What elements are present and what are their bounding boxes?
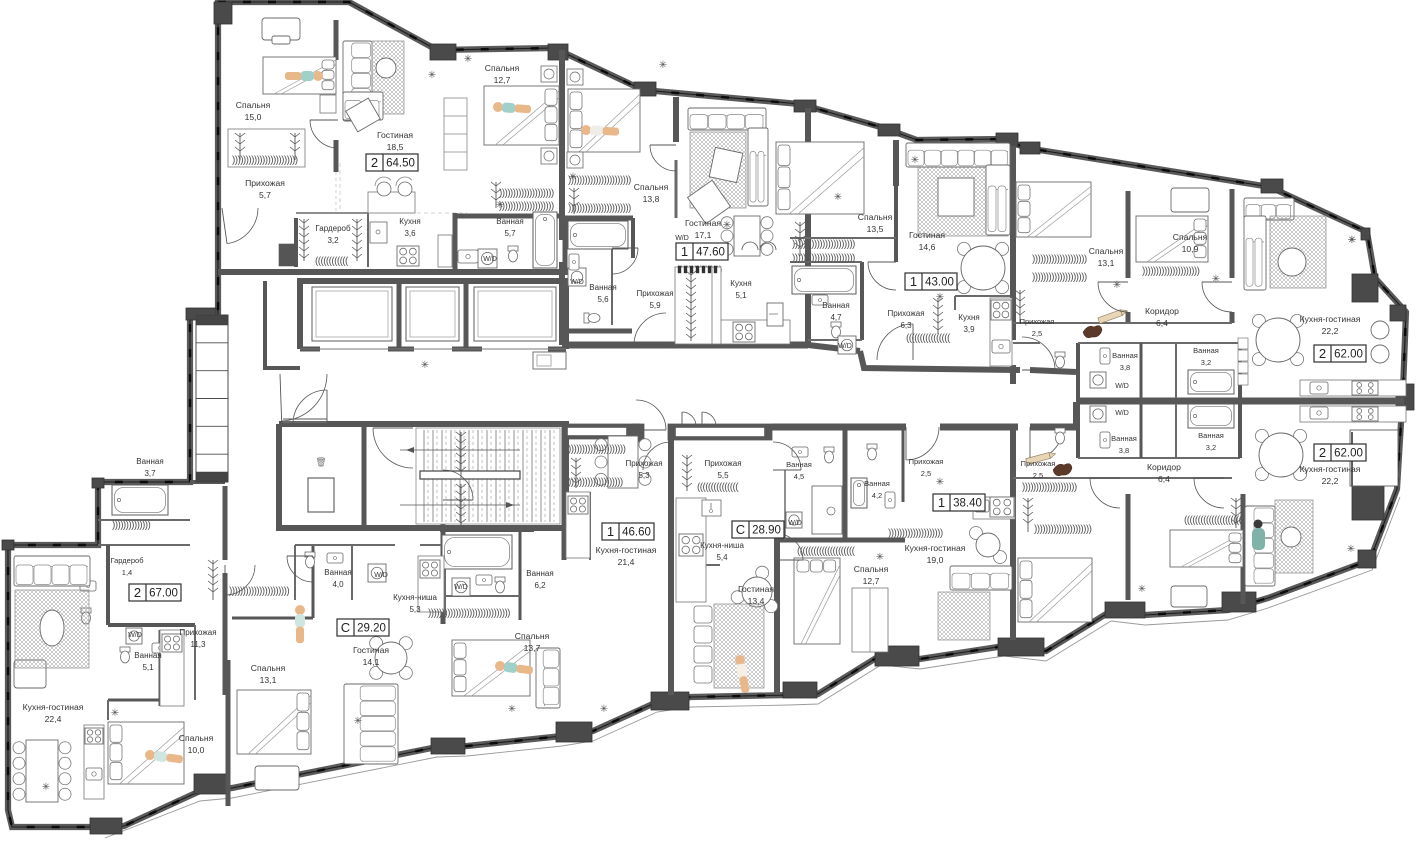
svg-text:47.60: 47.60: [696, 247, 725, 259]
svg-text:2,5: 2,5: [1033, 471, 1043, 480]
svg-text:46.60: 46.60: [622, 527, 651, 539]
svg-text:Кухня-гостиная: Кухня-гостиная: [905, 543, 966, 553]
svg-text:2: 2: [1319, 346, 1326, 361]
svg-text:🗑: 🗑: [315, 457, 326, 467]
svg-text:✳: ✳: [508, 704, 516, 715]
svg-text:Спальня: Спальня: [634, 182, 669, 192]
svg-text:✳: ✳: [876, 552, 884, 563]
svg-text:17,1: 17,1: [695, 230, 712, 240]
svg-text:)))))))))))))): )))))))))))))): [112, 520, 150, 531]
svg-text:W/D: W/D: [838, 343, 852, 350]
svg-text:5,3: 5,3: [638, 471, 650, 480]
svg-text:)))))))))))))))))))))))): )))))))))))))))))))))))): [232, 155, 298, 166]
svg-text:6,2: 6,2: [534, 581, 546, 590]
svg-text:Прихожая: Прихожая: [1020, 317, 1055, 326]
svg-text:Прихожая: Прихожая: [1021, 459, 1056, 468]
svg-text:15,0: 15,0: [245, 112, 262, 122]
svg-text:)))))))))))))))))))): )))))))))))))))))))): [1032, 272, 1087, 283]
svg-text:✳: ✳: [1212, 274, 1220, 285]
svg-text:Кухня-гостиная: Кухня-гостиная: [23, 702, 84, 712]
svg-text:Ванная: Ванная: [496, 217, 523, 226]
svg-text:W/D: W/D: [788, 520, 802, 527]
svg-text:1: 1: [910, 274, 917, 289]
svg-text:Ванная: Ванная: [136, 457, 163, 466]
svg-text:С: С: [341, 620, 350, 635]
svg-text:Ванная: Ванная: [1198, 431, 1224, 440]
svg-text:✳: ✳: [421, 360, 429, 371]
svg-text:))))))))))))))))))))): ))))))))))))))))))))): [1034, 524, 1092, 535]
svg-text:✳: ✳: [600, 704, 608, 715]
svg-text:))))))))))))))))))))))): ))))))))))))))))))))))): [568, 175, 631, 186]
svg-text:12,7: 12,7: [494, 75, 511, 85]
svg-text:Кухня: Кухня: [730, 279, 751, 288]
svg-text:13,1: 13,1: [260, 675, 277, 685]
svg-text:12,7: 12,7: [863, 576, 880, 586]
svg-text:5,7: 5,7: [259, 190, 271, 200]
svg-text:4,5: 4,5: [794, 472, 804, 481]
svg-text:W/D: W/D: [1115, 383, 1129, 390]
svg-text:✳: ✳: [723, 220, 731, 231]
svg-text:)))))))))))))))))))): )))))))))))))))))))): [888, 528, 943, 539]
svg-text:Спальня: Спальня: [858, 212, 893, 222]
svg-text:Кухня: Кухня: [958, 313, 979, 322]
svg-text:43.00: 43.00: [925, 277, 954, 289]
svg-text:4,0: 4,0: [332, 580, 344, 589]
svg-text:22,2: 22,2: [1322, 326, 1339, 336]
svg-text:Гостиная: Гостиная: [377, 130, 413, 140]
svg-text:5,1: 5,1: [735, 291, 747, 300]
svg-text:✳: ✳: [111, 708, 119, 719]
svg-text:6,4: 6,4: [1156, 318, 1168, 328]
svg-text:3,9: 3,9: [963, 325, 975, 334]
svg-text:✳: ✳: [834, 192, 842, 203]
svg-text:✳: ✳: [464, 54, 472, 65]
svg-text:(((((((((((((((((((((: (((((((((((((((((((((: [797, 546, 856, 557]
svg-text:2,5: 2,5: [1032, 329, 1042, 338]
svg-text:Прихожая: Прихожая: [625, 459, 662, 468]
svg-text:Спальня: Спальня: [1173, 232, 1208, 242]
svg-text:Кухня: Кухня: [399, 217, 420, 226]
svg-text:Ванная: Ванная: [864, 479, 890, 488]
svg-text:W/D: W/D: [483, 256, 497, 263]
svg-text:5,1: 5,1: [142, 663, 154, 672]
svg-text:✳: ✳: [42, 782, 50, 793]
svg-text:3,6: 3,6: [404, 229, 416, 238]
svg-text:))))))))))))))))))))))): ))))))))))))))))))))))): [792, 253, 855, 264]
svg-text:18,5: 18,5: [387, 142, 404, 152]
svg-text:Гардероб: Гардероб: [315, 224, 351, 233]
svg-text:Прихожая: Прихожая: [704, 459, 741, 468]
svg-text:Коридор: Коридор: [1147, 462, 1181, 472]
svg-text:13,4: 13,4: [748, 596, 765, 606]
svg-text:Ванная: Ванная: [1112, 351, 1138, 360]
svg-text:11,3: 11,3: [191, 640, 207, 649]
svg-text:22,4: 22,4: [45, 714, 62, 724]
svg-text:Гостиная: Гостиная: [353, 645, 389, 655]
svg-text:Ванная: Ванная: [1193, 346, 1219, 355]
svg-text:✳: ✳: [496, 200, 504, 211]
svg-text:Спальня: Спальня: [854, 564, 889, 574]
svg-text:14,6: 14,6: [919, 242, 936, 252]
svg-text:Гостиная: Гостиная: [909, 230, 945, 240]
svg-text:13,7: 13,7: [524, 643, 541, 653]
svg-text:)))))))))))))))))))): )))))))))))))))))))): [499, 201, 554, 212]
svg-text:2: 2: [1319, 445, 1326, 460]
svg-text:4,7: 4,7: [830, 313, 842, 322]
svg-text:Гостиная: Гостиная: [685, 218, 721, 228]
svg-text:)))))))))))))))))))))))))))))): )))))))))))))))))))))))))))))): [428, 608, 510, 619]
svg-text:Ванная: Ванная: [786, 460, 812, 469]
svg-text:Прихожая: Прихожая: [179, 628, 216, 637]
svg-text:✳: ✳: [936, 477, 944, 488]
svg-text:Прихожая: Прихожая: [909, 457, 944, 466]
svg-text:5,9: 5,9: [649, 301, 661, 310]
svg-text:10,0: 10,0: [188, 745, 205, 755]
svg-text:21,4: 21,4: [618, 557, 635, 567]
svg-text:5,4: 5,4: [716, 553, 728, 562]
svg-text:Ванная: Ванная: [1111, 434, 1137, 443]
svg-text:Кухня-ниша: Кухня-ниша: [393, 593, 437, 602]
svg-text:Спальня: Спальня: [251, 663, 286, 673]
svg-text:W/D: W/D: [570, 279, 584, 286]
svg-text:3,8: 3,8: [1119, 446, 1129, 455]
svg-text:Кухня-гостиная: Кухня-гостиная: [1300, 314, 1361, 324]
svg-text:✳: ✳: [354, 716, 362, 727]
svg-text:5,7: 5,7: [504, 229, 516, 238]
svg-text:Спальня: Спальня: [515, 631, 550, 641]
svg-text:6,3: 6,3: [900, 321, 912, 330]
svg-text:3,2: 3,2: [1201, 358, 1211, 367]
svg-text:10,9: 10,9: [1182, 244, 1199, 254]
svg-text:3,7: 3,7: [144, 469, 156, 478]
svg-text:Кухня-гостиная: Кухня-гостиная: [596, 545, 657, 555]
svg-text:Спальня: Спальня: [236, 100, 271, 110]
svg-text:38.40: 38.40: [953, 498, 982, 510]
svg-text:14,1: 14,1: [363, 657, 380, 667]
svg-text:Ванная: Ванная: [526, 569, 553, 578]
svg-text:Ванная: Ванная: [822, 301, 849, 310]
svg-text:W/D: W/D: [675, 235, 689, 242]
svg-text:19,0: 19,0: [927, 555, 944, 565]
svg-text:2,5: 2,5: [921, 469, 931, 478]
svg-text:22,2: 22,2: [1322, 476, 1339, 486]
svg-text:Спальня: Спальня: [485, 63, 520, 73]
svg-text:Прихожая: Прихожая: [887, 309, 924, 318]
svg-text:✳: ✳: [1347, 544, 1355, 555]
svg-text:2: 2: [371, 155, 378, 170]
svg-text:6,4: 6,4: [1158, 474, 1170, 484]
svg-text:С: С: [736, 522, 745, 537]
svg-text:5,6: 5,6: [597, 295, 609, 304]
svg-text:(((((((((((((((((((((: (((((((((((((((((((((: [1184, 515, 1243, 526]
svg-text:1: 1: [938, 495, 945, 510]
svg-text:W/D: W/D: [454, 584, 468, 591]
svg-text:13,5: 13,5: [867, 224, 884, 234]
svg-text:))))))))))))))))))))))): ))))))))))))))))))))))): [792, 239, 855, 250]
svg-text:4,2: 4,2: [872, 491, 882, 500]
svg-text:Спальня: Спальня: [179, 733, 214, 743]
svg-text:✳: ✳: [428, 70, 436, 81]
svg-text:✳: ✳: [911, 155, 919, 166]
svg-text:W/D: W/D: [374, 572, 388, 579]
svg-text:5,3: 5,3: [409, 605, 421, 614]
svg-text:64.50: 64.50: [386, 158, 415, 170]
svg-text:3,2: 3,2: [1206, 443, 1216, 452]
svg-text:))))))))))))))))))))): ))))))))))))))))))))): [1142, 266, 1200, 277]
svg-text:✳: ✳: [569, 172, 577, 183]
svg-text:))))))))))))))))))))): ))))))))))))))))))))): [568, 444, 626, 455]
svg-text:3,8: 3,8: [1120, 363, 1130, 372]
svg-text:Ванная: Ванная: [324, 568, 351, 577]
svg-text:Ванная: Ванная: [589, 283, 616, 292]
svg-text:1: 1: [681, 244, 688, 259]
svg-text:Кухня-гостиная: Кухня-гостиная: [1300, 464, 1361, 474]
svg-text:29.20: 29.20: [357, 623, 386, 635]
svg-text:62.00: 62.00: [1334, 349, 1363, 361]
svg-text:✳: ✳: [659, 60, 667, 71]
svg-text:✳: ✳: [1348, 235, 1356, 246]
svg-text:W/D: W/D: [1115, 410, 1129, 417]
svg-text:✳: ✳: [1138, 584, 1146, 595]
svg-text:3,2: 3,2: [327, 236, 339, 245]
svg-text:)))))))))))))))))))): )))))))))))))))))))): [499, 188, 554, 199]
svg-text:Гардероб: Гардероб: [111, 556, 144, 565]
svg-text:Ванная: Ванная: [134, 651, 161, 660]
svg-text:1: 1: [607, 524, 614, 539]
svg-text:13,8: 13,8: [643, 194, 660, 204]
svg-text:Коридор: Коридор: [1145, 306, 1179, 316]
svg-text:Кухня-ниша: Кухня-ниша: [700, 541, 744, 550]
svg-text:(((((((((((((((: (((((((((((((((: [697, 482, 739, 493]
svg-text:28.90: 28.90: [752, 525, 781, 537]
svg-text:Спальня: Спальня: [1089, 246, 1124, 256]
svg-text:1,4: 1,4: [122, 568, 132, 577]
svg-text:✳: ✳: [936, 292, 944, 303]
svg-text:13,1: 13,1: [1098, 258, 1115, 268]
svg-text:)))))))))))))))))))): )))))))))))))))))))): [1032, 254, 1087, 265]
svg-text:))))))))))))))))))))))): ))))))))))))))))))))))): [568, 203, 631, 214]
svg-text:((((((((((((: ((((((((((((: [315, 256, 349, 267]
svg-text:Гостиная: Гостиная: [738, 584, 774, 594]
svg-text:67.00: 67.00: [149, 588, 178, 600]
svg-text:Прихожая: Прихожая: [245, 178, 285, 188]
svg-text:)))))))))))))))))))): )))))))))))))))))))): [1022, 482, 1077, 493]
svg-text:Прихожая: Прихожая: [636, 289, 673, 298]
svg-text:62.00: 62.00: [1334, 448, 1363, 460]
svg-text:W/D: W/D: [128, 632, 142, 639]
svg-text:)))))))))))))))))))))): )))))))))))))))))))))): [229, 586, 289, 597]
svg-text:5,5: 5,5: [717, 471, 729, 480]
svg-text:2: 2: [134, 585, 141, 600]
